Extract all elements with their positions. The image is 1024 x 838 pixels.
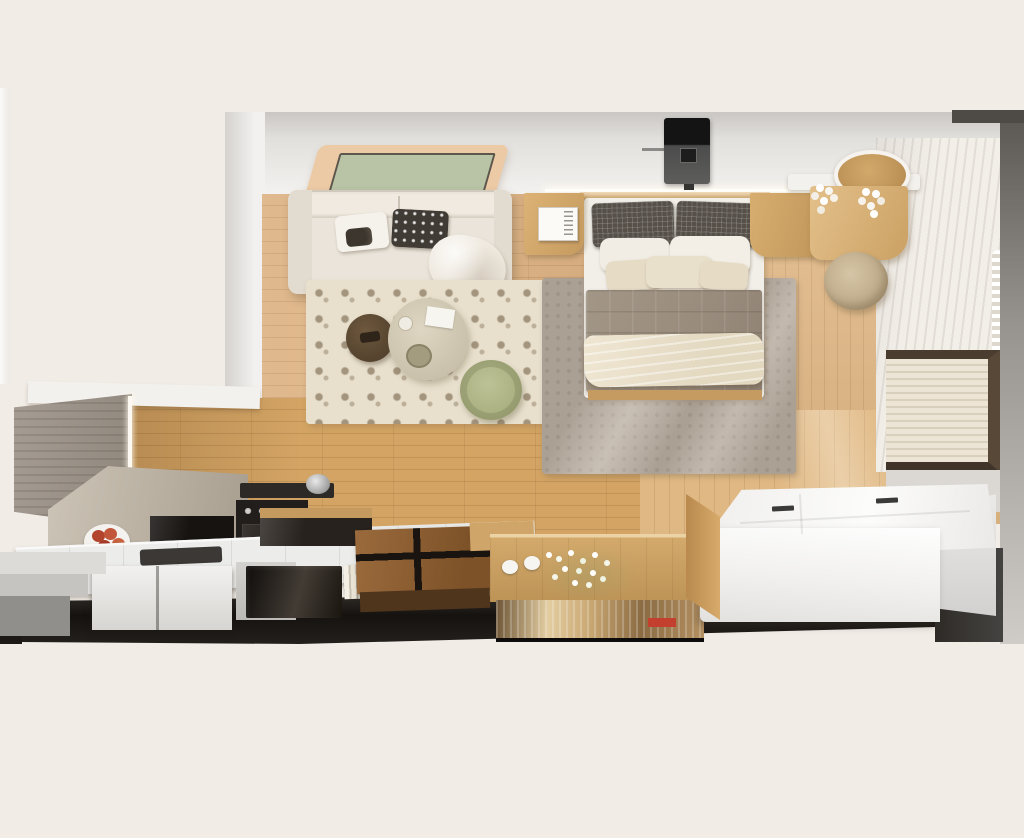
- projector-mount: [684, 184, 694, 190]
- white-cup: [502, 560, 518, 574]
- flower-blossoms: [546, 552, 552, 558]
- coffee-table-cup: [398, 316, 413, 331]
- step-middle: [0, 574, 88, 596]
- flower-spray: [538, 544, 638, 600]
- foot-throw: [584, 332, 765, 387]
- drawer-unit-wood-top: [260, 508, 372, 518]
- outer-wall-sliver: [0, 88, 10, 384]
- white-base-cabinets: [92, 566, 232, 630]
- book-spine-lines: [564, 211, 573, 235]
- apartment-render: [0, 0, 1024, 838]
- nightstand-right: [750, 193, 816, 257]
- red-accent-object: [648, 618, 676, 627]
- vanity-desk: [810, 186, 908, 260]
- top-right-wall-notch: [952, 110, 1024, 123]
- green-pouf: [460, 360, 522, 420]
- bed-wood-base: [588, 390, 762, 400]
- coffee-table-paper: [425, 306, 455, 329]
- leaf-pillow-motif: [345, 227, 373, 248]
- right-wall-strip: [1000, 112, 1024, 644]
- cream-pillow-c: [699, 260, 749, 292]
- coffee-table-bowl: [406, 344, 432, 368]
- pot: [306, 474, 330, 494]
- vanity-stool: [824, 252, 888, 310]
- flower-vase-right: [862, 188, 870, 196]
- projector-lens: [680, 148, 697, 163]
- flower-vase-left: [816, 184, 824, 192]
- platform-front: [700, 528, 940, 622]
- sofa-left-armrest: [288, 190, 312, 294]
- dark-glass-cabinet: [246, 566, 342, 618]
- window-with-blinds: [886, 350, 1000, 472]
- step-lower: [0, 596, 70, 636]
- left-wall-band: [225, 112, 265, 424]
- ceiling-light-inset: [328, 153, 495, 193]
- step-upper: [0, 552, 106, 574]
